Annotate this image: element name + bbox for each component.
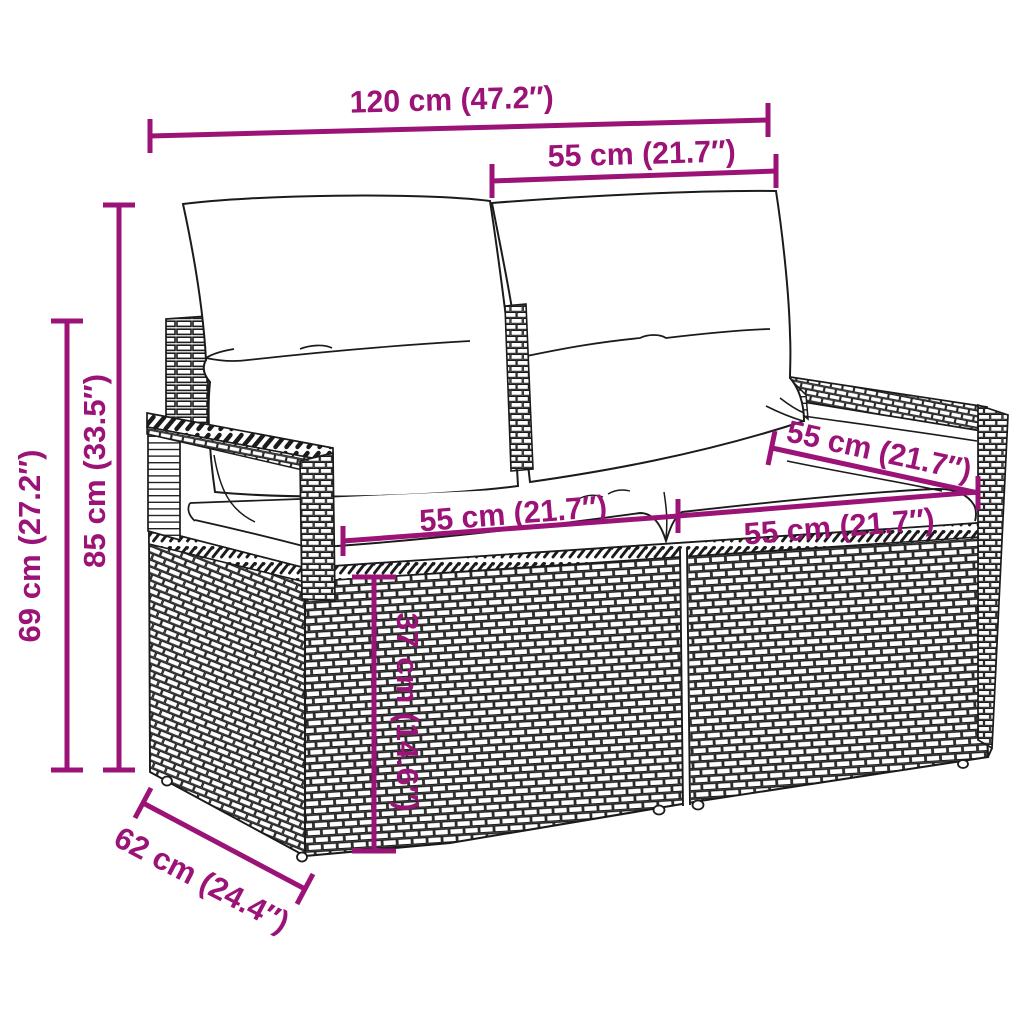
svg-text:120 cm (47.2″): 120 cm (47.2″) [349, 79, 554, 119]
svg-text:37 cm (14.6″): 37 cm (14.6″) [390, 613, 425, 812]
svg-text:85 cm (33.5″): 85 cm (33.5″) [77, 374, 112, 568]
svg-text:69 cm (27.2″): 69 cm (27.2″) [12, 450, 47, 643]
svg-text:55 cm (21.7″): 55 cm (21.7″) [547, 133, 736, 173]
